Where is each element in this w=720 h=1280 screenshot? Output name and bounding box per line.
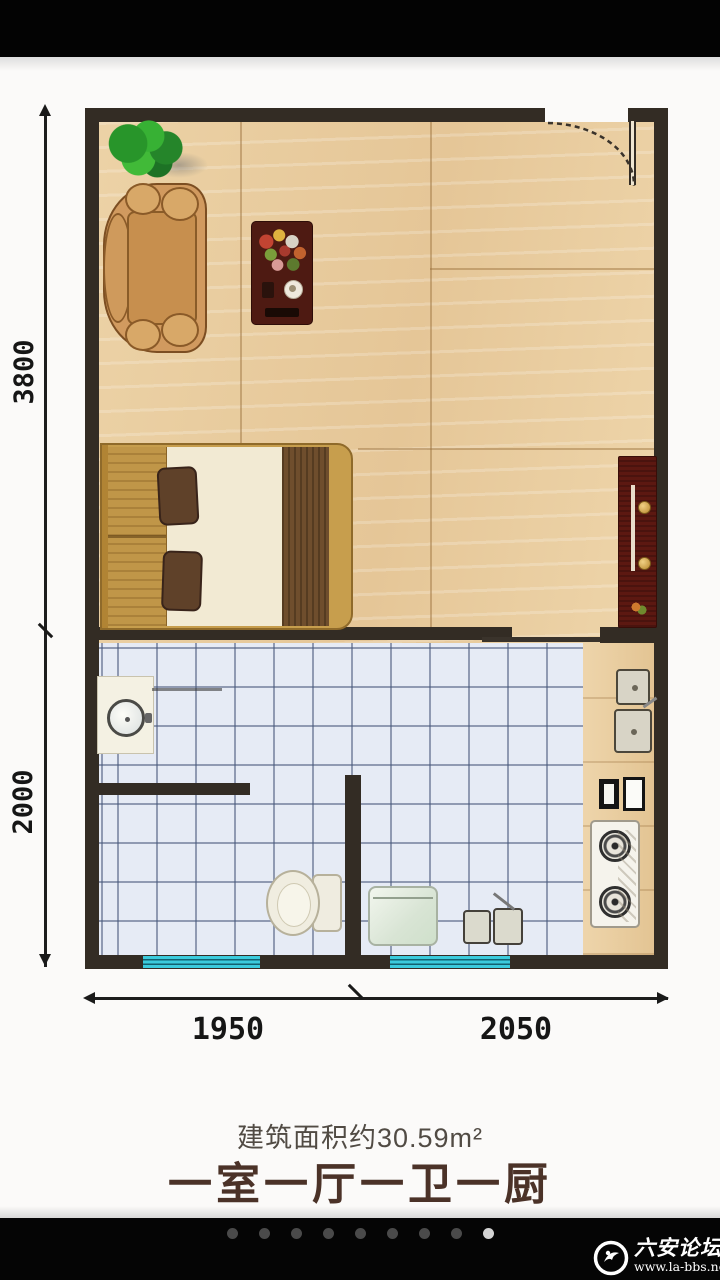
cup: [284, 280, 303, 299]
watermark-site-name: 六安论坛: [634, 1236, 718, 1260]
floor-seam: [430, 268, 654, 270]
stove-burner: [599, 830, 631, 862]
dimension-arrow: [83, 992, 95, 1004]
washer-lid-line: [373, 897, 433, 899]
pagination-dot-6[interactable]: [387, 1228, 398, 1239]
top-shadow: [0, 57, 720, 71]
coffee-table: [252, 222, 312, 324]
wall-bathroom-partition: [345, 775, 361, 955]
sofa: [103, 183, 207, 353]
screen: 3800 2000 1950 2050 建筑面积约30.59m² 一室一厅一卫一…: [0, 0, 720, 1280]
pagination-dot-3[interactable]: [291, 1228, 302, 1239]
top-status-bar: [0, 0, 720, 57]
bed-crease: [108, 535, 166, 538]
cutting-board: [623, 777, 645, 811]
dimension-arrow: [657, 992, 669, 1004]
window-left: [143, 956, 260, 968]
sofa-cushion: [125, 183, 161, 215]
sink-basin: [616, 669, 650, 705]
tv-cabinet-slit: [631, 485, 635, 571]
pillow: [161, 550, 203, 611]
floor-seam: [430, 122, 432, 627]
room-layout-label: 一室一厅一卫一厨: [0, 1148, 720, 1212]
kitchen-sink: [614, 669, 654, 753]
pillow: [157, 466, 200, 526]
sink-basin: [614, 709, 652, 753]
wall-bathroom-stub: [85, 783, 250, 795]
cabinet-knob: [638, 557, 651, 570]
flower-arrangement: [254, 226, 310, 278]
pagination-dot-7[interactable]: [419, 1228, 430, 1239]
watermark: 六安论坛 www.la-bbs.net: [592, 1238, 718, 1278]
faucet: [145, 713, 152, 723]
double-basin-sink: [463, 906, 525, 946]
dimension-line-vertical: [44, 110, 47, 967]
wall-room-divider-right: [600, 627, 668, 643]
washing-machine: [368, 886, 438, 946]
potted-plant: [104, 120, 190, 182]
sofa-cushion: [161, 313, 199, 347]
tray: [265, 308, 299, 317]
sink-basin: [493, 908, 523, 945]
cabinet-decor: [630, 601, 647, 616]
sliding-door: [482, 637, 600, 642]
pagination-dot-2[interactable]: [259, 1228, 270, 1239]
sofa-cushion: [161, 187, 199, 221]
pagination-dot-1[interactable]: [227, 1228, 238, 1239]
dimension-label-2000: 2000: [8, 767, 38, 837]
dimension-label-1950: 1950: [168, 1012, 288, 1047]
gas-stove: [590, 820, 640, 928]
cutting-board: [599, 779, 619, 809]
washbasin: [107, 699, 145, 737]
dimension-arrow: [39, 954, 51, 966]
wall-left: [85, 108, 99, 969]
watermark-url: www.la-bbs.net: [634, 1260, 718, 1274]
shower-screen: [152, 688, 222, 691]
sofa-seat: [127, 211, 197, 325]
pagination-dot-5[interactable]: [355, 1228, 366, 1239]
cutting-boards: [599, 777, 645, 811]
toilet-bowl: [266, 870, 320, 936]
cabinet-knob: [638, 501, 651, 514]
bottom-shadow: [0, 1206, 720, 1218]
tv-cabinet: [618, 456, 657, 628]
pagination-dot-8[interactable]: [451, 1228, 462, 1239]
window-right: [390, 956, 510, 968]
bed-blanket: [282, 447, 329, 626]
dimension-label-2050: 2050: [456, 1012, 576, 1047]
vanity-counter: [97, 676, 154, 754]
forum-logo-icon: [592, 1239, 630, 1277]
double-bed: [100, 443, 353, 630]
table-item: [262, 282, 274, 298]
pagination-dot-9[interactable]: [483, 1228, 494, 1239]
sink-basin: [463, 910, 491, 944]
pagination-dot-4[interactable]: [323, 1228, 334, 1239]
entry-door-swing-arc: [546, 120, 638, 188]
sofa-cushion: [125, 319, 161, 351]
dimension-arrow: [39, 104, 51, 116]
dimension-label-3800: 3800: [9, 337, 39, 407]
toilet: [266, 868, 346, 938]
floor-seam: [358, 448, 654, 450]
dimension-line-horizontal: [87, 997, 668, 1000]
stove-burner: [599, 886, 631, 918]
